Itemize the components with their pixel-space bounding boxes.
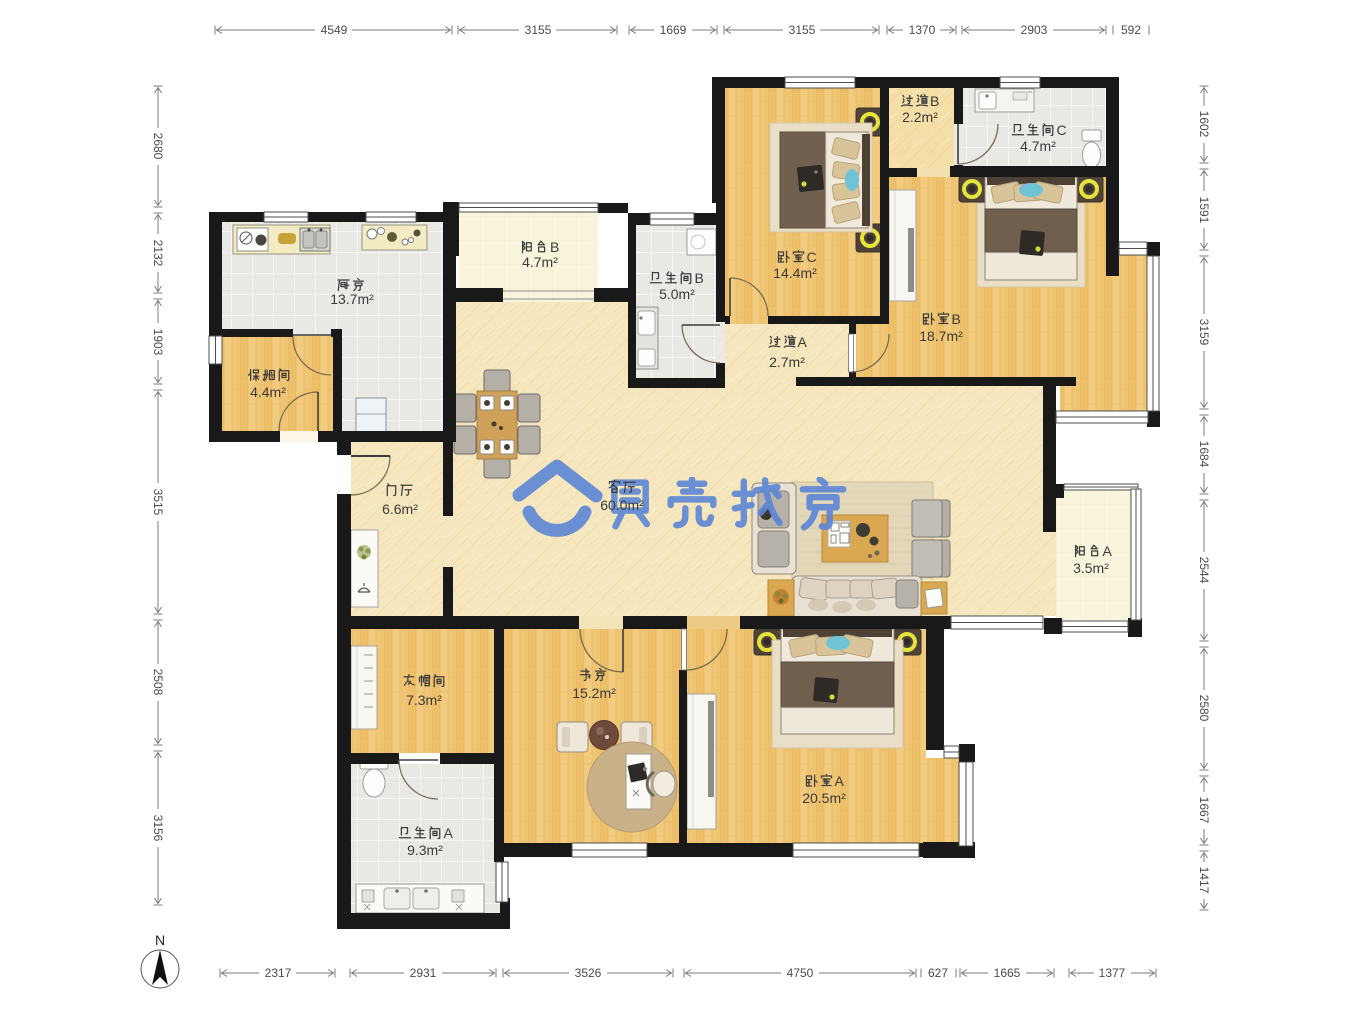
svg-text:2680: 2680 [151, 133, 165, 160]
svg-text:3.5m²: 3.5m² [1073, 560, 1109, 576]
svg-text:B: B [695, 270, 704, 286]
svg-text:C: C [807, 249, 817, 265]
svg-text:1669: 1669 [660, 23, 687, 37]
svg-text:B: B [930, 93, 939, 109]
svg-text:1665: 1665 [994, 966, 1021, 980]
svg-text:B: B [550, 239, 559, 255]
svg-text:A: A [1103, 543, 1113, 559]
svg-text:4.7m²: 4.7m² [522, 254, 558, 270]
svg-text:4750: 4750 [787, 966, 814, 980]
svg-text:3526: 3526 [575, 966, 602, 980]
svg-text:3155: 3155 [789, 23, 816, 37]
svg-text:2317: 2317 [265, 966, 292, 980]
svg-text:4.4m²: 4.4m² [250, 384, 286, 400]
svg-text:2132: 2132 [151, 240, 165, 267]
svg-text:A: A [835, 773, 845, 789]
svg-text:2544: 2544 [1197, 557, 1211, 584]
svg-text:N: N [155, 932, 165, 948]
svg-text:13.7m²: 13.7m² [330, 291, 374, 307]
svg-text:7.3m²: 7.3m² [406, 692, 442, 708]
svg-text:2.2m²: 2.2m² [902, 109, 938, 125]
svg-text:4549: 4549 [321, 23, 348, 37]
svg-text:14.4m²: 14.4m² [773, 265, 817, 281]
svg-text:3155: 3155 [525, 23, 552, 37]
svg-text:A: A [444, 825, 454, 841]
svg-text:2.7m²: 2.7m² [769, 354, 805, 370]
svg-text:C: C [1057, 122, 1067, 138]
svg-text:1377: 1377 [1099, 966, 1126, 980]
svg-text:1602: 1602 [1197, 111, 1211, 138]
svg-text:60.0m²: 60.0m² [600, 497, 644, 513]
svg-text:1667: 1667 [1197, 797, 1211, 824]
svg-text:3159: 3159 [1197, 319, 1211, 346]
svg-text:20.5m²: 20.5m² [802, 790, 846, 806]
svg-text:6.6m²: 6.6m² [382, 501, 418, 517]
svg-text:2931: 2931 [410, 966, 437, 980]
svg-text:1903: 1903 [151, 329, 165, 356]
svg-text:9.3m²: 9.3m² [407, 842, 443, 858]
svg-text:2508: 2508 [151, 669, 165, 696]
svg-text:627: 627 [928, 966, 948, 980]
svg-text:1684: 1684 [1197, 441, 1211, 468]
svg-text:1591: 1591 [1197, 197, 1211, 224]
svg-text:B: B [952, 311, 961, 327]
svg-text:A: A [798, 334, 808, 350]
svg-text:592: 592 [1121, 23, 1141, 37]
svg-text:3156: 3156 [151, 815, 165, 842]
svg-text:4.7m²: 4.7m² [1020, 138, 1056, 154]
svg-text:1417: 1417 [1197, 867, 1211, 894]
svg-text:18.7m²: 18.7m² [919, 328, 963, 344]
svg-text:5.0m²: 5.0m² [659, 286, 695, 302]
svg-text:2903: 2903 [1021, 23, 1048, 37]
svg-text:3515: 3515 [151, 489, 165, 516]
svg-text:2580: 2580 [1197, 695, 1211, 722]
svg-text:1370: 1370 [909, 23, 936, 37]
svg-text:15.2m²: 15.2m² [572, 685, 616, 701]
